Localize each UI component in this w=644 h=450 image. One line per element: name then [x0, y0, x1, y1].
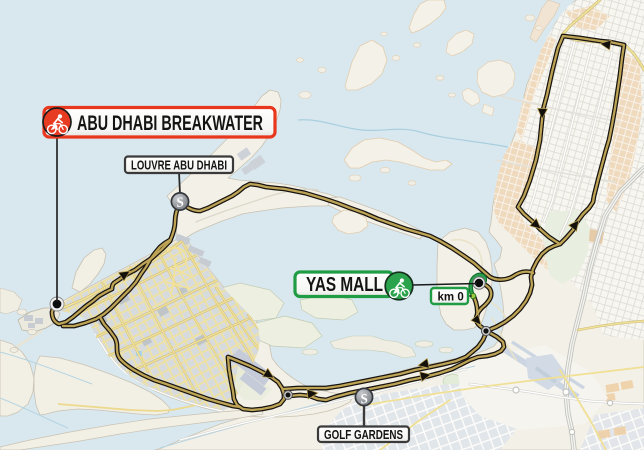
svg-text:ABU DHABI BREAKWATER: ABU DHABI BREAKWATER — [77, 112, 263, 135]
svg-text:LOUVRE ABU DHABI: LOUVRE ABU DHABI — [131, 159, 227, 173]
svg-text:km 0: km 0 — [438, 292, 464, 304]
svg-text:GOLF GARDENS: GOLF GARDENS — [324, 428, 403, 442]
svg-text:YAS MALL: YAS MALL — [306, 274, 383, 296]
